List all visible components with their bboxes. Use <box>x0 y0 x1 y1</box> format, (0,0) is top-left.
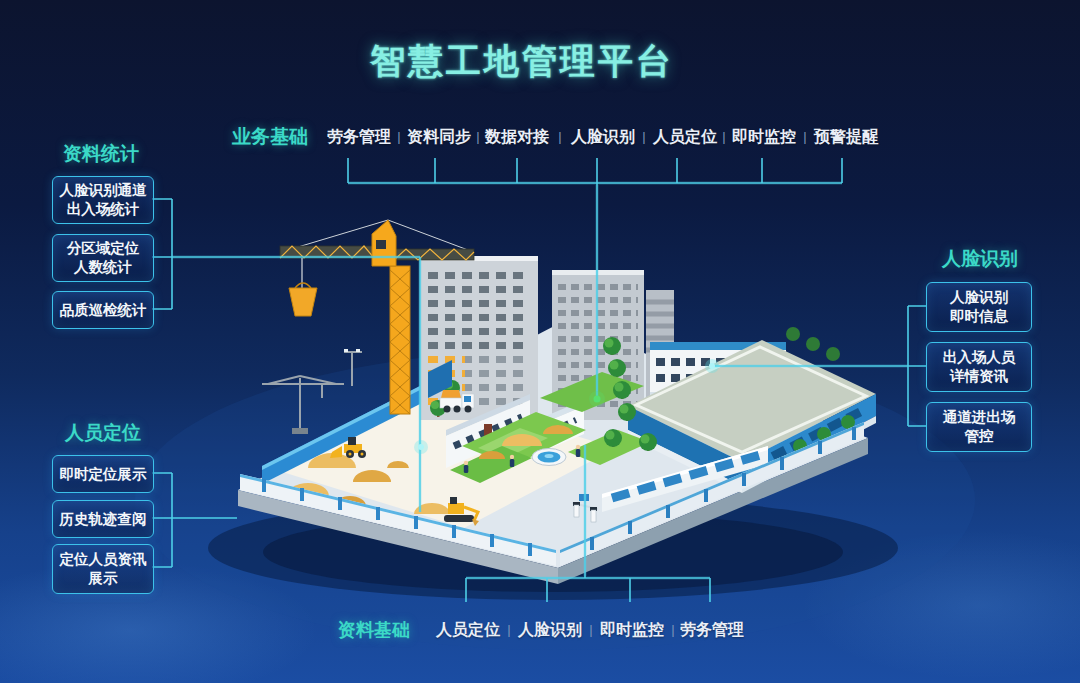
feature-box-person-info: 定位人员资讯 展示 <box>52 544 154 594</box>
top-menu-item-0: 劳务管理 <box>327 127 391 148</box>
top-menu-item-4: 人员定位 <box>653 127 717 148</box>
bottom-menu-item-2: 即时监控 <box>600 620 664 641</box>
top-menu-item-2: 数据对接 <box>485 127 549 148</box>
separator: | <box>476 129 479 144</box>
top-menu-heading: 业务基础 <box>232 124 308 150</box>
bottom-menu-heading: 资料基础 <box>338 618 410 642</box>
bottom-menu-item-0: 人员定位 <box>436 620 500 641</box>
feature-box-channel-stats: 人脸识别通道 出入场统计 <box>52 176 154 224</box>
top-menu-item-6: 预警提醒 <box>814 127 878 148</box>
separator: | <box>589 622 592 637</box>
cyan-glow-dot-left <box>418 444 424 450</box>
bottom-menu-item-3: 劳务管理 <box>680 620 744 641</box>
left-bottom-heading: 人员定位 <box>65 420 141 446</box>
crane-bucket <box>289 288 317 316</box>
diagram-canvas <box>0 0 1080 683</box>
separator: | <box>671 622 674 637</box>
top-menu-item-5: 即时监控 <box>732 127 796 148</box>
left-top-heading: 资料统计 <box>63 141 139 167</box>
feature-box-entry-detail: 出入场人员 详情资讯 <box>926 342 1032 392</box>
cyan-glow-dot-right <box>709 363 715 369</box>
separator: | <box>722 129 725 144</box>
feature-box-history-track: 历史轨迹查阅 <box>52 500 154 538</box>
fountain <box>532 449 566 466</box>
separator: | <box>642 129 645 144</box>
feature-box-quality-inspect: 品质巡检统计 <box>52 291 154 329</box>
site-illustration <box>135 220 975 650</box>
bottom-menu-item-1: 人脸识别 <box>518 620 582 641</box>
separator: | <box>803 129 806 144</box>
smart-site-poster: 智慧工地管理平台 业务基础 劳务管理 | 资料同步 | 数据对接 | 人脸识别 … <box>0 0 1080 683</box>
separator: | <box>507 622 510 637</box>
separator: | <box>397 129 400 144</box>
crane-bucket-handle <box>295 283 311 288</box>
feature-box-zone-count: 分区域定位 人数统计 <box>52 234 154 282</box>
page-title: 智慧工地管理平台 <box>370 38 674 85</box>
top-menu-item-1: 资料同步 <box>407 127 471 148</box>
top-menu-item-3: 人脸识别 <box>571 127 635 148</box>
green-glow-dot <box>594 396 601 403</box>
feature-box-face-realtime: 人脸识别 即时信息 <box>926 282 1032 332</box>
feature-box-realtime-position: 即时定位展示 <box>52 455 154 493</box>
right-heading: 人脸识别 <box>942 246 1018 272</box>
feature-box-channel-control: 通道进出场 管控 <box>926 402 1032 452</box>
separator: | <box>558 129 561 144</box>
